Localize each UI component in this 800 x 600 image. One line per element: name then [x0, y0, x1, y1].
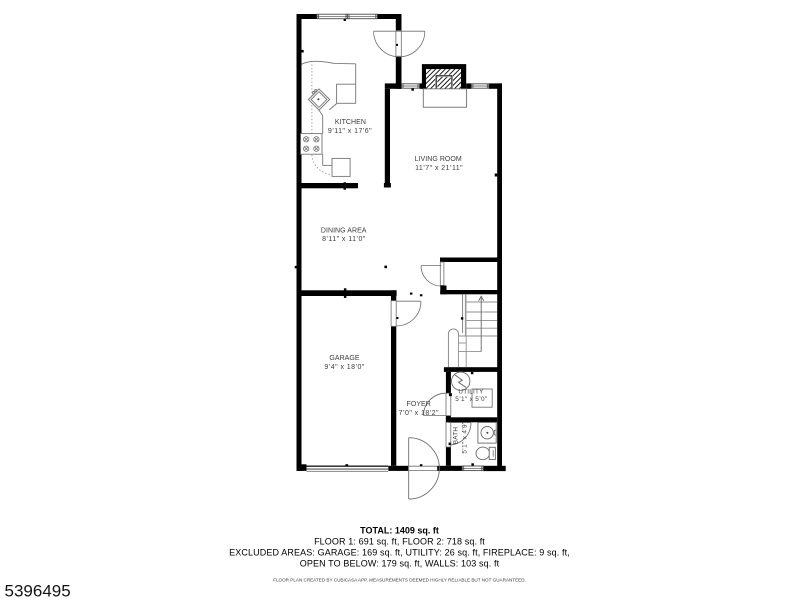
svg-text:9’11" x 17’6": 9’11" x 17’6" [328, 128, 372, 135]
svg-text:8’11" x 11’0": 8’11" x 11’0" [322, 236, 366, 243]
svg-text:11’7" x 21’11": 11’7" x 21’11" [415, 165, 463, 172]
svg-text:BATH: BATH [453, 427, 460, 445]
svg-text:5’1" x 4’9": 5’1" x 4’9" [461, 421, 468, 453]
svg-text:KITCHEN: KITCHEN [335, 119, 366, 126]
svg-text:LIVING ROOM: LIVING ROOM [415, 156, 462, 163]
svg-text:DINING AREA: DINING AREA [321, 227, 367, 234]
svg-text:7’0" x 18’2": 7’0" x 18’2" [399, 410, 439, 417]
svg-text:OPEN TO BELOW: 179 sq. ft, WAL: OPEN TO BELOW: 179 sq. ft, WALLS: 103 sq… [300, 559, 500, 569]
svg-text:TOTAL: 1409 sq. ft: TOTAL: 1409 sq. ft [360, 525, 439, 535]
svg-text:FOYER: FOYER [407, 401, 431, 408]
svg-text:9’4" x 18’0": 9’4" x 18’0" [324, 364, 364, 371]
svg-text:5396495: 5396495 [5, 582, 71, 600]
svg-text:FLOOR PLAN CREATED BY CUBICASA: FLOOR PLAN CREATED BY CUBICASA APP. MEAS… [273, 577, 526, 582]
svg-text:5’1" x 5’0": 5’1" x 5’0" [455, 396, 487, 403]
svg-text:UTILITY: UTILITY [458, 389, 484, 396]
svg-text:EXCLUDED AREAS: GARAGE: 169 sq: EXCLUDED AREAS: GARAGE: 169 sq. ft, UTIL… [229, 548, 570, 558]
svg-text:FLOOR 1: 691 sq. ft, FLOOR 2:: FLOOR 1: 691 sq. ft, FLOOR 2: 718 sq. ft [314, 537, 485, 547]
svg-text:GARAGE: GARAGE [329, 355, 360, 362]
